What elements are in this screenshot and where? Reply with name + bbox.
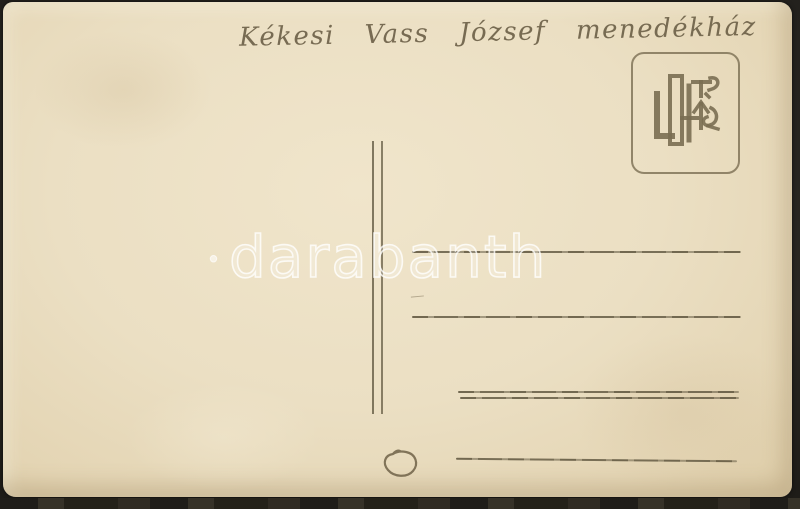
pencil-letter-d: D bbox=[379, 446, 423, 484]
watermark-bullet: • bbox=[207, 248, 220, 273]
paper-stain bbox=[33, 30, 213, 150]
paper-highlight bbox=[123, 382, 323, 492]
address-line bbox=[456, 458, 737, 462]
paper-stain bbox=[573, 332, 793, 492]
address-line bbox=[458, 391, 739, 393]
address-line bbox=[412, 251, 741, 253]
scanned-postcard-photo: Kékesi Vass József menedékház bbox=[0, 0, 800, 509]
handwritten-address-text: Kékesi Vass József menedékház bbox=[239, 11, 792, 53]
postcard-divider-rule bbox=[372, 141, 383, 414]
manufacturer-monogram-icon bbox=[648, 72, 722, 154]
watermark-text: darabanth bbox=[229, 223, 547, 291]
scan-bed-edge bbox=[0, 498, 800, 509]
pencil-mark bbox=[411, 295, 424, 300]
address-line bbox=[460, 397, 739, 399]
address-line bbox=[412, 316, 741, 318]
stamp-box bbox=[631, 52, 740, 174]
postcard-back: Kékesi Vass József menedékház bbox=[3, 2, 792, 497]
